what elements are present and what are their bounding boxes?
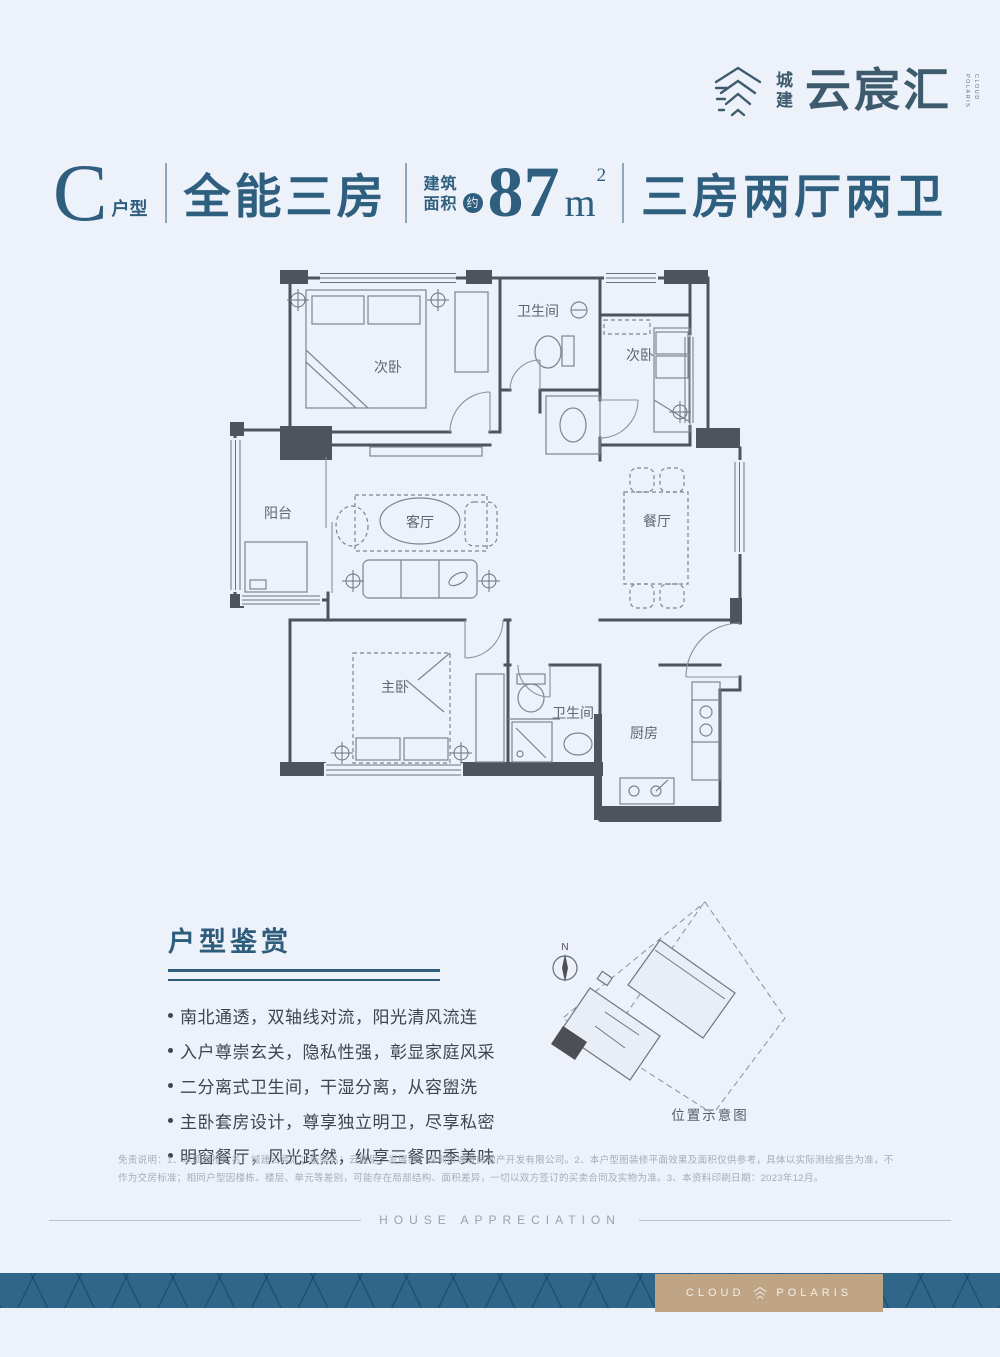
- unit-title-bar: C 户型 全能三房 建筑 面积 约 87 m2 三房两厅两卫: [0, 158, 1000, 227]
- site-building-right: [628, 940, 735, 1038]
- area-unit-exp: 2: [597, 165, 607, 186]
- appreciation-title: 户型鉴赏: [168, 920, 598, 959]
- list-item: 二分离式卫生间，干湿分离，从容盥洗: [168, 1073, 598, 1098]
- room-label-kitchen: 厨房: [630, 725, 658, 741]
- logo-building-icon: [710, 60, 766, 122]
- unit-type-suffix: 户型: [112, 195, 148, 221]
- room-label-bath-bottom: 卫生间: [552, 705, 594, 721]
- logo-brand-prefix: 城建: [776, 71, 795, 110]
- unit-layout: 三房两厅两卫: [641, 158, 947, 227]
- room-label-bedroom-top-right: 次卧: [626, 347, 654, 363]
- dining-furniture: [624, 468, 688, 608]
- area-unit: m2: [565, 185, 606, 221]
- appreciation-bullet-1: 南北通透，双轴线对流，阳光清风流连: [180, 1003, 478, 1028]
- footer-divider-label: HOUSE APPRECIATION: [379, 1213, 621, 1227]
- area-label-line2: 面积: [424, 195, 458, 215]
- balcony-furniture: [245, 542, 307, 592]
- area-unit-m: m: [565, 180, 596, 225]
- footer-divider-row: HOUSE APPRECIATION: [0, 1213, 1000, 1227]
- footer-brand-cloud: CLOUD: [686, 1287, 745, 1299]
- area-approx-badge: 约: [463, 193, 483, 213]
- area-label-line1: 建筑: [424, 175, 458, 195]
- footer-brand-building-icon: [753, 1286, 767, 1300]
- compass-north-label: N: [561, 942, 568, 953]
- list-item: 主卧套房设计，尊享独立明卫，尽享私密: [168, 1108, 598, 1133]
- plan-doors: [326, 360, 740, 697]
- appreciation-bullet-3: 二分离式卫生间，干湿分离，从容盥洗: [180, 1073, 478, 1098]
- divider-line-left: [49, 1220, 361, 1221]
- site-plan-caption: 位置示意图: [671, 1107, 749, 1123]
- compass-icon: N: [553, 942, 577, 982]
- appreciation-rule: [168, 969, 440, 981]
- bedroom-top-left-furniture: [306, 290, 488, 408]
- poster-page: 城建 云宸汇 POLARIS CLOUD C 户型 全能三房 建筑 面积 约 8…: [0, 0, 1000, 1357]
- room-label-bedroom-top-left: 次卧: [374, 359, 402, 375]
- list-item: 入户尊崇玄关，隐私性强，彰显家庭风采: [168, 1038, 598, 1063]
- footer-brand-block: CLOUD POLARIS: [655, 1274, 883, 1312]
- bullet-dot-icon: [168, 1083, 173, 1088]
- title-divider: [165, 163, 167, 223]
- area-label: 建筑 面积: [424, 175, 458, 215]
- room-label-living: 客厅: [406, 514, 434, 530]
- logo-tagline-1: POLARIS: [964, 74, 970, 108]
- bullet-dot-icon: [168, 1048, 173, 1053]
- room-label-bath-top: 卫生间: [517, 303, 559, 319]
- bullet-dot-icon: [168, 1118, 173, 1123]
- brand-logo: 城建 云宸汇 POLARIS CLOUD: [710, 60, 979, 122]
- logo-brand-name: 云宸汇: [805, 68, 952, 114]
- plan-room-labels: 次卧 卫生间 次卧 阳台 客厅 餐厅 主卧 卫生间 厨房: [264, 303, 671, 741]
- logo-english-vertical: POLARIS CLOUD: [964, 74, 979, 108]
- site-plan: N 位置示意图: [535, 888, 835, 1133]
- list-item: 南北通透，双轴线对流，阳光清风流连: [168, 1003, 598, 1028]
- floor-plan: 次卧 卫生间 次卧 阳台 客厅 餐厅 主卧 卫生间 厨房: [228, 250, 768, 844]
- bullet-dot-icon: [168, 1013, 173, 1018]
- disclaimer-text: 免责说明：1、本项目推广名：城建云宸汇；备案名：云宸里；发展商：深圳市城发房地产…: [118, 1152, 900, 1187]
- room-label-dining: 餐厅: [643, 513, 671, 529]
- bedroom-top-right-furniture: [604, 320, 690, 432]
- unit-type: C 户型: [53, 160, 148, 226]
- appreciation-bullet-4: 主卧套房设计，尊享独立明卫，尽享私密: [180, 1108, 495, 1133]
- area-value: 87: [488, 164, 560, 220]
- appreciation-bullet-2: 入户尊崇玄关，隐私性强，彰显家庭风采: [180, 1038, 495, 1063]
- title-divider: [405, 163, 407, 223]
- appreciation-section: 户型鉴赏 南北通透，双轴线对流，阳光清风流连 入户尊崇玄关，隐私性强，彰显家庭风…: [168, 920, 598, 1178]
- kitchen-fixtures: [620, 682, 720, 804]
- divider-line-right: [639, 1220, 951, 1221]
- unit-name: 全能三房: [184, 158, 388, 227]
- room-label-master: 主卧: [381, 679, 409, 695]
- title-divider: [622, 163, 624, 223]
- appreciation-list: 南北通透，双轴线对流，阳光清风流连 入户尊崇玄关，隐私性强，彰显家庭风采 二分离…: [168, 1003, 598, 1168]
- unit-area: 建筑 面积 约 87 m2: [424, 164, 606, 220]
- bath-top-fixtures: [535, 302, 600, 454]
- room-label-balcony: 阳台: [264, 505, 292, 521]
- logo-tagline-2: CLOUD: [973, 74, 979, 108]
- master-furniture: [353, 653, 504, 763]
- unit-type-letter: C: [53, 160, 108, 226]
- footer-brand-polaris: POLARIS: [776, 1287, 852, 1299]
